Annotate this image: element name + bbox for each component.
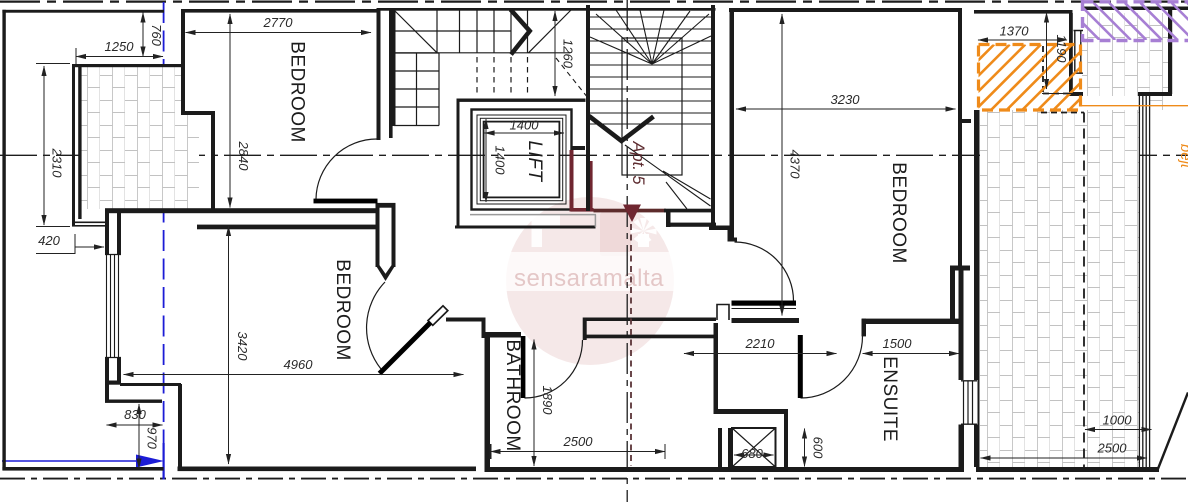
svg-text:Apt. 5: Apt. 5 [629,140,647,185]
svg-text:3230: 3230 [831,92,861,107]
svg-text:760: 760 [149,24,164,46]
svg-text:1190: 1190 [1054,35,1069,64]
svg-text:1400: 1400 [493,146,508,176]
svg-text:ENSUITE: ENSUITE [879,356,900,442]
svg-text:2840: 2840 [236,141,251,172]
svg-text:2210: 2210 [745,336,776,351]
svg-text:2500: 2500 [1097,441,1128,456]
svg-text:420: 420 [38,233,60,248]
svg-text:600: 600 [811,437,826,459]
svg-text:830: 830 [124,407,146,422]
svg-text:3420: 3420 [235,332,250,362]
svg-text:1000: 1000 [1103,413,1133,428]
svg-text:1890: 1890 [540,386,555,416]
svg-text:BATHROOM: BATHROOM [502,339,523,451]
svg-text:LIFT: LIFT [524,140,545,182]
svg-text:1500: 1500 [883,336,913,351]
svg-text:680: 680 [741,446,763,461]
svg-text:BEDROOM: BEDROOM [287,41,308,143]
svg-text:BEDROOM: BEDROOM [332,259,353,361]
svg-text:2770: 2770 [263,15,294,30]
svg-text:4370: 4370 [788,150,803,180]
svg-text:2310: 2310 [50,148,65,179]
svg-text:BEDROOM: BEDROOM [888,162,909,264]
svg-text:sensaramalta: sensaramalta [514,265,664,292]
svg-text:970: 970 [145,427,160,449]
svg-text:4960: 4960 [284,357,314,372]
svg-text:1370: 1370 [1000,24,1030,39]
svg-text:bejt: bejt [1177,144,1188,169]
svg-text:1260: 1260 [561,39,576,69]
svg-text:1400: 1400 [510,118,540,133]
svg-text:2500: 2500 [563,434,594,449]
svg-text:1250: 1250 [105,39,135,54]
